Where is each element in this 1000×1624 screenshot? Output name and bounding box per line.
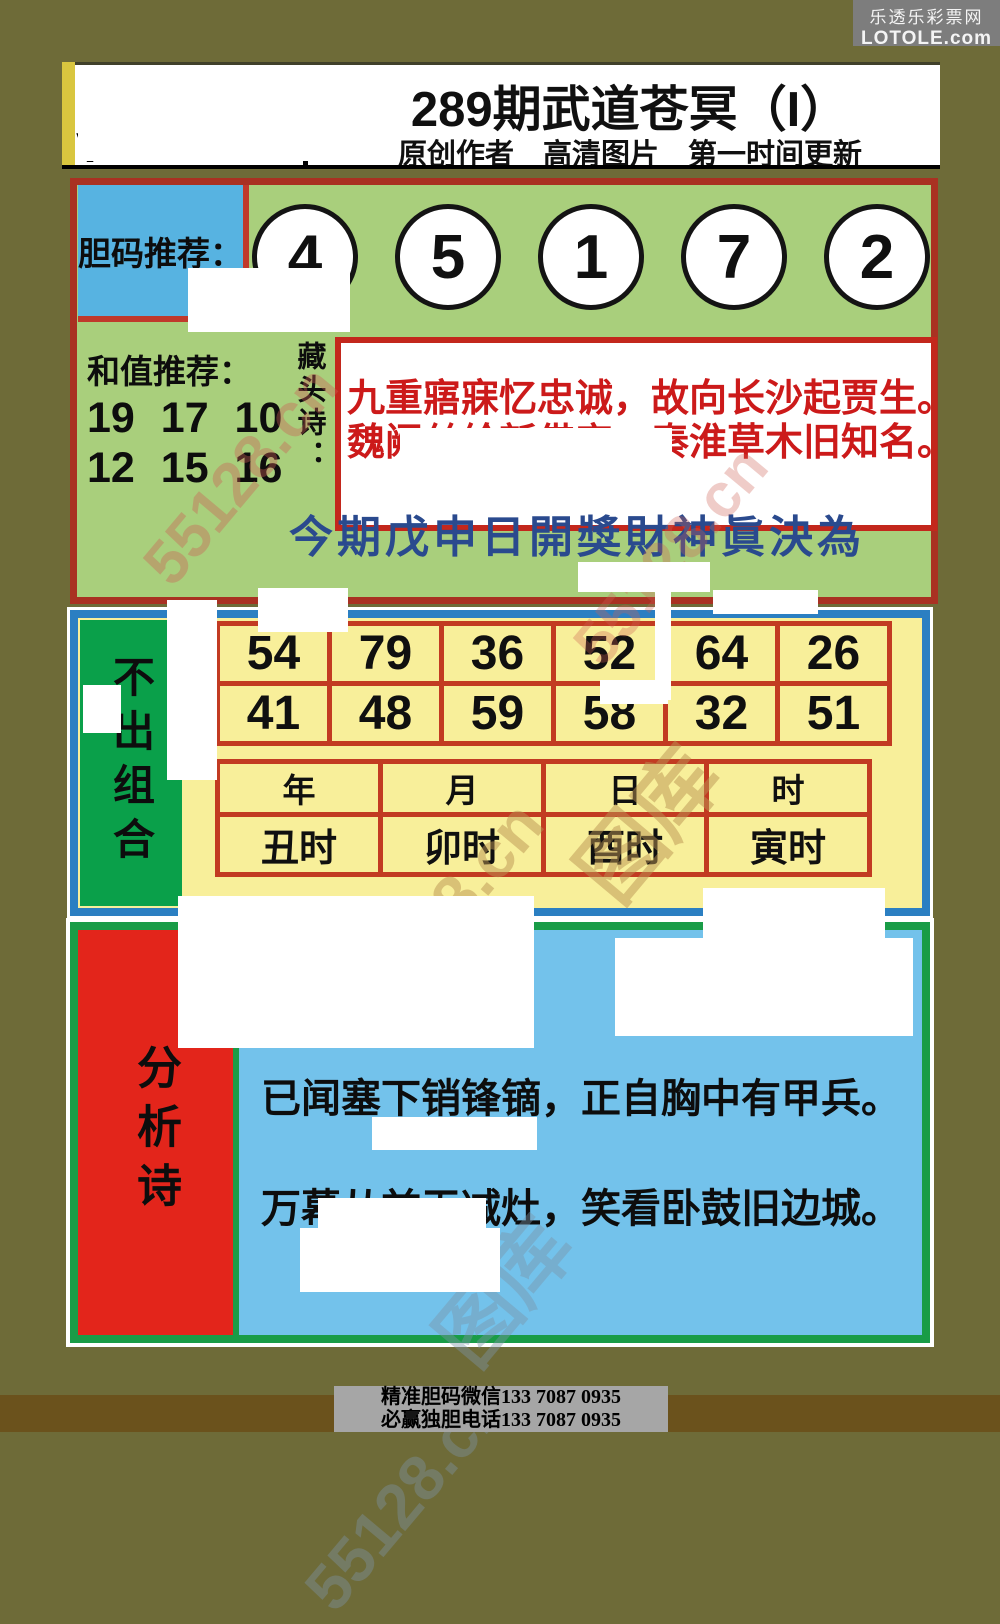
acrostic-poem-line-1: 九重寤寐忆忠诚，故向长沙起贾生。	[347, 377, 931, 421]
sum-value-label: 和值推荐：	[87, 345, 312, 393]
contact-phone-line: 必赢独胆电话133 7087 0935	[334, 1409, 668, 1432]
sum-value-block: 和值推荐： 19 17 10 12 15 16	[87, 345, 312, 493]
table-row: 丑时 卯时 酉时 寅时	[218, 815, 870, 875]
censor-patch	[318, 1198, 486, 1229]
number-cell: 48	[330, 684, 442, 744]
contact-box: 精准胆码微信133 7087 0935 必赢独胆电话133 7087 0935	[334, 1386, 668, 1432]
time-header-cell: 日	[544, 762, 707, 815]
number-cell: 41	[218, 684, 330, 744]
censor-patch	[372, 1117, 537, 1150]
analysis-poem-line-1: 已闻塞下销锋镝，正自胸中有甲兵。	[261, 1066, 901, 1124]
time-branch-table: 年 月 日 时 丑时 卯时 酉时 寅时	[215, 759, 872, 877]
number-cell: 59	[442, 684, 554, 744]
time-value-cell: 卯时	[381, 815, 544, 875]
censor-patch	[703, 888, 885, 940]
number-cell: 26	[778, 624, 890, 684]
brand-site-name: 乐透乐彩票网	[853, 3, 1000, 28]
censor-patch	[400, 428, 672, 494]
dan-circle: 7	[681, 204, 787, 310]
sum-value-row-1: 19 17 10	[87, 393, 312, 443]
number-cell: 32	[666, 684, 778, 744]
dan-circle: 2	[824, 204, 930, 310]
censor-patch	[615, 938, 913, 1036]
excluded-numbers-table: 54 79 36 52 64 26 41 48 59 58 32 51	[215, 621, 892, 746]
time-header-cell: 月	[381, 762, 544, 815]
time-header-cell: 年	[218, 762, 381, 815]
censor-patch	[600, 680, 668, 704]
header-divider	[62, 165, 940, 169]
censor-patch	[167, 600, 217, 780]
header-left-strip	[62, 62, 75, 168]
censor-patch	[258, 588, 348, 632]
calligraphy-text: 今期戊申日開獎財神眞決為	[289, 501, 934, 565]
censor-patch	[300, 1228, 500, 1292]
censor-patch	[188, 268, 350, 332]
analysis-poem-label: 分析诗	[123, 1044, 188, 1221]
brand-block: 乐透乐彩票网 LOTOLE.com	[853, 0, 1000, 46]
number-cell: 64	[666, 624, 778, 684]
time-value-cell: 酉时	[544, 815, 707, 875]
dan-circle: 1	[538, 204, 644, 310]
censor-patch	[78, 75, 310, 161]
dan-circle: 5	[395, 204, 501, 310]
brand-site-url: LOTOLE.com	[853, 28, 1000, 50]
censor-patch	[178, 896, 534, 1048]
number-cell: 54	[218, 624, 330, 684]
time-value-cell: 寅时	[707, 815, 870, 875]
recommendation-panel: 胆码推荐： 4 5 1 7 2 和值推荐： 19 17 10 12 15 16 …	[70, 178, 938, 604]
censor-patch	[578, 562, 710, 592]
time-value-cell: 丑时	[218, 815, 381, 875]
table-row: 54 79 36 52 64 26	[218, 624, 890, 684]
censor-patch	[713, 590, 818, 614]
dan-number-circles: 4 5 1 7 2	[252, 204, 930, 310]
contact-wechat-line: 精准胆码微信133 7087 0935	[334, 1386, 668, 1409]
table-row: 年 月 日 时	[218, 762, 870, 815]
sum-value-row-2: 12 15 16	[87, 443, 312, 493]
number-cell: 36	[442, 624, 554, 684]
number-cell: 51	[778, 684, 890, 744]
acrostic-poem-label: 藏头诗：	[288, 341, 330, 501]
censor-patch	[83, 685, 121, 733]
number-cell: 79	[330, 624, 442, 684]
time-header-cell: 时	[707, 762, 870, 815]
table-row: 41 48 59 58 32 51	[218, 684, 890, 744]
number-cell: 52	[554, 624, 666, 684]
